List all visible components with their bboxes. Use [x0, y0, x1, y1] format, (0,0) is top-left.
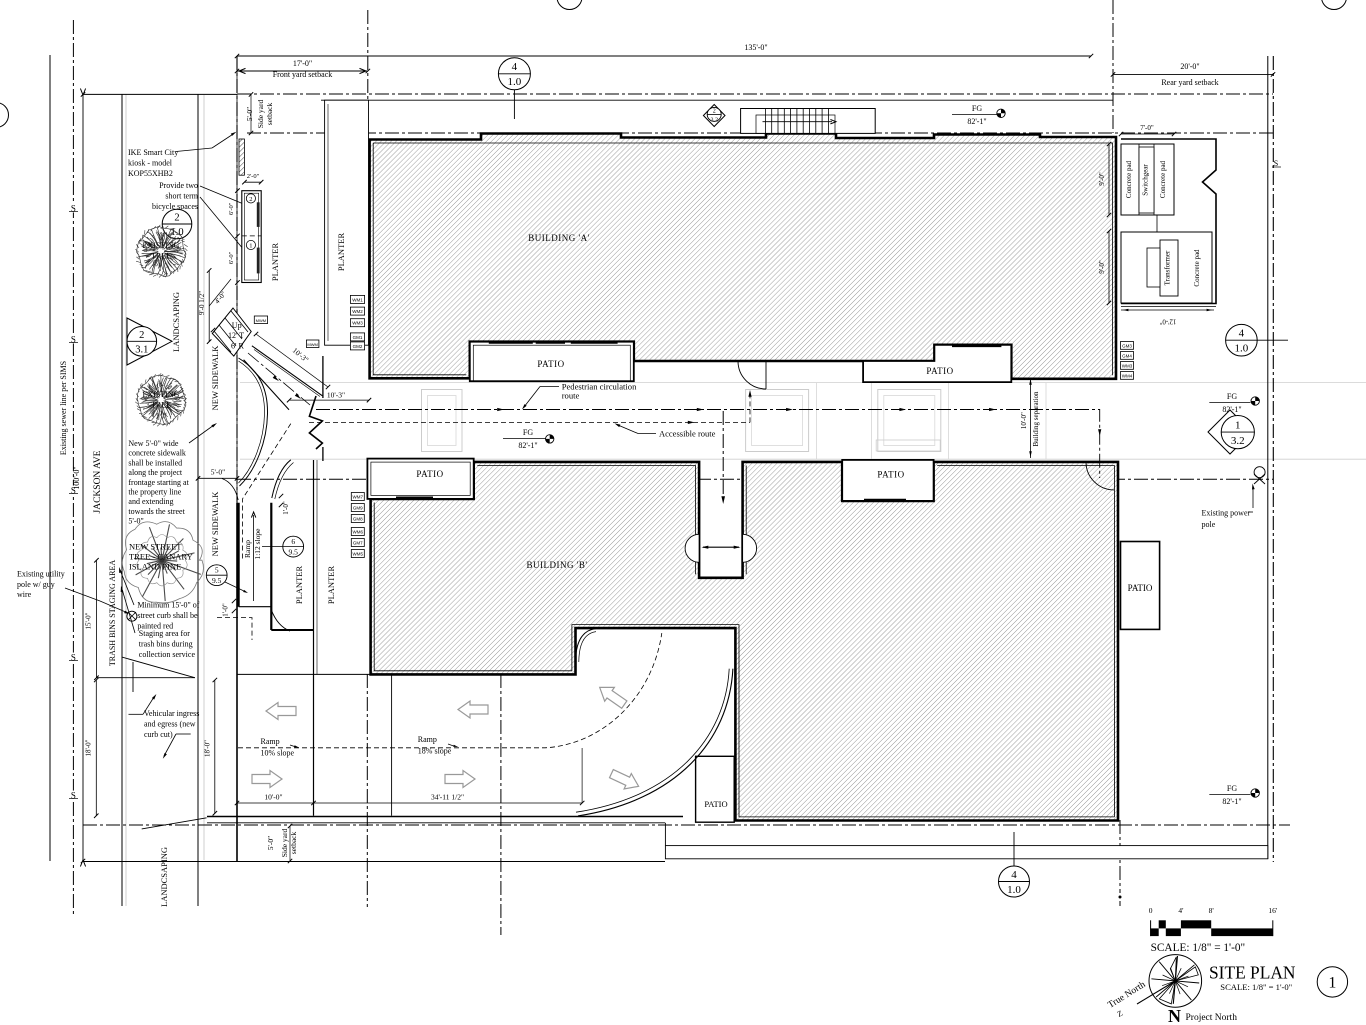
- svg-text:trash bins during: trash bins during: [139, 640, 193, 649]
- svg-text:EXISTING: EXISTING: [143, 390, 180, 399]
- svg-text:1: 1: [1235, 420, 1241, 432]
- svg-text:3.2: 3.2: [710, 117, 718, 123]
- svg-text:kiosk - model: kiosk - model: [128, 159, 173, 168]
- svg-text:1.0: 1.0: [1007, 884, 1021, 896]
- svg-text:EXISTING: EXISTING: [143, 241, 180, 250]
- svg-text:Existing power: Existing power: [1202, 508, 1251, 517]
- svg-text:FG: FG: [523, 428, 533, 437]
- svg-text:LANDCSAPING: LANDCSAPING: [171, 292, 181, 352]
- svg-text:route: route: [562, 391, 580, 401]
- svg-text:Concrete pad: Concrete pad: [1125, 160, 1133, 198]
- svg-text:NEW STREET: NEW STREET: [129, 542, 182, 552]
- svg-text:PATIO: PATIO: [704, 799, 727, 809]
- svg-text:PATIO: PATIO: [1128, 583, 1153, 593]
- svg-text:9.5: 9.5: [289, 547, 299, 556]
- svg-text:10'-0": 10'-0": [1020, 412, 1028, 429]
- svg-text:Vehicular ingress: Vehicular ingress: [144, 709, 199, 718]
- svg-text:S: S: [71, 335, 76, 345]
- svg-text:5'-0": 5'-0": [128, 517, 143, 526]
- svg-text:WM3: WM3: [352, 321, 363, 326]
- svg-text:12'-0": 12'-0": [1159, 318, 1176, 326]
- svg-text:NEW SIDEWALK: NEW SIDEWALK: [210, 491, 220, 557]
- svg-text:6'-0": 6'-0": [228, 202, 235, 215]
- svg-text:Rear yard setback: Rear yard setback: [1161, 78, 1218, 87]
- svg-text:100'-0": 100'-0": [72, 466, 81, 489]
- svg-text:IKE Smart City: IKE Smart City: [128, 148, 178, 157]
- svg-text:Existing sewer line per SIMS: Existing sewer line per SIMS: [59, 361, 68, 455]
- svg-text:TREE: TREE: [151, 252, 171, 261]
- svg-text:20'-0": 20'-0": [1180, 62, 1199, 71]
- svg-text:curb cut): curb cut): [144, 730, 173, 739]
- svg-text:5'-0": 5'-0": [211, 468, 225, 477]
- svg-text:JACKSON AVE: JACKSON AVE: [93, 450, 103, 513]
- svg-text:GM9: GM9: [353, 506, 363, 511]
- svg-text:1: 1: [249, 243, 252, 250]
- svg-text:WM6: WM6: [353, 530, 364, 535]
- svg-text:SITE PLAN: SITE PLAN: [1209, 963, 1296, 983]
- svg-text:6'-0": 6'-0": [228, 251, 235, 264]
- svg-text:GM7: GM7: [353, 541, 363, 546]
- svg-text:82'-1": 82'-1": [518, 441, 537, 450]
- svg-text:0: 0: [1149, 906, 1153, 915]
- svg-text:4: 4: [1011, 869, 1017, 881]
- svg-text:PLANTER: PLANTER: [326, 566, 336, 605]
- svg-text:collection service: collection service: [139, 650, 196, 659]
- svg-text:2: 2: [249, 196, 252, 203]
- svg-text:TREE - CANARY: TREE - CANARY: [129, 552, 193, 562]
- svg-text:WM7: WM7: [353, 495, 364, 500]
- svg-text:TREE: TREE: [151, 401, 171, 410]
- svg-text:Concrete pad: Concrete pad: [1193, 249, 1201, 287]
- svg-text:Side yard: Side yard: [280, 828, 289, 857]
- svg-text:4: 4: [1239, 328, 1245, 340]
- svg-text:GM1: GM1: [353, 335, 363, 340]
- svg-text:Concrete pad: Concrete pad: [1159, 160, 1167, 198]
- svg-text:5: 5: [215, 566, 219, 575]
- svg-text:N: N: [1168, 1006, 1181, 1025]
- svg-text:WM4: WM4: [1122, 374, 1133, 379]
- svg-text:9'-0": 9'-0": [1098, 260, 1106, 274]
- svg-text:1.0: 1.0: [1235, 343, 1249, 355]
- svg-text:TRASH BINS STAGING AREA: TRASH BINS STAGING AREA: [108, 560, 117, 666]
- svg-text:SCALE: 1/8" = 1'-0": SCALE: 1/8" = 1'-0": [1220, 982, 1292, 992]
- svg-text:New 5'-0" wide: New 5'-0" wide: [128, 439, 178, 448]
- svg-text:10'-3": 10'-3": [327, 391, 345, 400]
- svg-text:18'-0": 18'-0": [204, 740, 212, 757]
- svg-text:PLANTER: PLANTER: [270, 243, 280, 282]
- svg-text:WM3: WM3: [1122, 364, 1133, 369]
- svg-text:6' R: 6' R: [231, 342, 244, 351]
- svg-text:16': 16': [1268, 906, 1278, 915]
- svg-text:18'-0": 18'-0": [85, 739, 93, 756]
- svg-text:12' T: 12' T: [228, 331, 244, 340]
- svg-text:Minimum 15'-0" of: Minimum 15'-0" of: [137, 601, 199, 610]
- svg-text:8': 8': [1209, 906, 1215, 915]
- svg-text:PLANTER: PLANTER: [294, 566, 304, 605]
- svg-text:82'-1": 82'-1": [1222, 797, 1241, 806]
- svg-text:WM5: WM5: [353, 552, 364, 557]
- svg-text:S: S: [71, 204, 76, 214]
- svg-text:4: 4: [512, 61, 518, 73]
- svg-text:along the project: along the project: [128, 468, 183, 477]
- svg-text:Ramp: Ramp: [243, 540, 252, 558]
- svg-text:9'-0 1/2": 9'-0 1/2": [198, 291, 206, 315]
- svg-text:6: 6: [291, 537, 295, 546]
- svg-text:FG: FG: [1227, 392, 1237, 401]
- svg-text:Front yard setback: Front yard setback: [273, 70, 333, 79]
- svg-text:WM2: WM2: [352, 309, 363, 314]
- svg-text:Up: Up: [232, 321, 242, 330]
- svg-text:KOP55XHB2: KOP55XHB2: [128, 169, 173, 178]
- svg-text:Existing utility: Existing utility: [17, 570, 65, 579]
- svg-text:ISLAND PINE: ISLAND PINE: [129, 562, 181, 572]
- svg-text:Building separation: Building separation: [1032, 391, 1040, 447]
- svg-text:1:12 slope: 1:12 slope: [253, 528, 262, 560]
- svg-text:S: S: [71, 653, 76, 663]
- svg-text:Accessible route: Accessible route: [659, 429, 716, 439]
- svg-text:135'-0": 135'-0": [744, 43, 767, 52]
- svg-text:9'-0": 9'-0": [1098, 172, 1106, 186]
- svg-text:15'-0": 15'-0": [84, 612, 92, 629]
- svg-text:17'-0": 17'-0": [293, 59, 312, 68]
- svg-text:82'-1": 82'-1": [967, 117, 986, 126]
- svg-text:BUILDING 'B': BUILDING 'B': [527, 560, 588, 570]
- svg-text:street curb shall be: street curb shall be: [137, 611, 198, 620]
- svg-text:LANDCSAPING: LANDCSAPING: [159, 847, 169, 907]
- svg-text:34'-11 1/2": 34'-11 1/2": [431, 793, 464, 802]
- svg-text:BUILDING 'A': BUILDING 'A': [528, 233, 590, 243]
- svg-text:pole: pole: [1202, 520, 1216, 529]
- svg-text:3.2: 3.2: [1231, 435, 1245, 447]
- svg-text:3.1: 3.1: [135, 345, 148, 356]
- svg-text:S: S: [71, 791, 76, 801]
- svg-text:GM8: GM8: [353, 517, 363, 522]
- svg-text:MWM: MWM: [256, 318, 266, 323]
- svg-text:GM4: GM4: [1122, 354, 1132, 359]
- svg-text:MWM: MWM: [307, 342, 317, 347]
- svg-text:Switchgear: Switchgear: [1142, 164, 1150, 196]
- svg-text:FG: FG: [1227, 784, 1237, 793]
- svg-text:PATIO: PATIO: [416, 469, 443, 479]
- svg-text:2: 2: [139, 330, 144, 341]
- svg-text:2: 2: [713, 108, 716, 114]
- svg-text:Transformer: Transformer: [1164, 250, 1172, 285]
- svg-text:10% slope: 10% slope: [261, 749, 295, 758]
- svg-text:Provide two: Provide two: [159, 181, 198, 190]
- svg-text:7'-0": 7'-0": [1140, 124, 1154, 132]
- svg-text:wire: wire: [17, 590, 32, 599]
- svg-text:Staging area for: Staging area for: [139, 629, 190, 638]
- svg-text:2'-0": 2'-0": [247, 173, 260, 180]
- svg-text:pole w/ guy: pole w/ guy: [17, 580, 55, 589]
- svg-text:NEW SIDEWALK: NEW SIDEWALK: [210, 345, 220, 411]
- svg-text:1.0: 1.0: [508, 76, 522, 88]
- svg-text:and egress (new: and egress (new: [144, 720, 196, 729]
- svg-text:5'-0": 5'-0": [266, 836, 275, 850]
- svg-text:and extending: and extending: [128, 497, 173, 506]
- svg-text:GM3: GM3: [1122, 344, 1132, 349]
- svg-text:Project North: Project North: [1186, 1013, 1238, 1023]
- svg-text:9.5: 9.5: [212, 576, 222, 585]
- svg-text:towards the street: towards the street: [128, 507, 185, 516]
- svg-text:short term: short term: [165, 192, 198, 201]
- svg-text:Side yard: Side yard: [256, 99, 265, 128]
- svg-text:setback: setback: [265, 103, 274, 126]
- svg-text:shall be installed: shall be installed: [128, 458, 182, 467]
- svg-text:PATIO: PATIO: [877, 470, 904, 480]
- svg-text:frontage starting at: frontage starting at: [128, 478, 189, 487]
- svg-text:4': 4': [1178, 906, 1184, 915]
- svg-text:WM1: WM1: [352, 297, 363, 302]
- svg-text:Ramp: Ramp: [261, 737, 280, 746]
- svg-text:the property line: the property line: [128, 488, 181, 497]
- svg-text:concrete sidewalk: concrete sidewalk: [128, 449, 186, 458]
- svg-text:GM2: GM2: [353, 344, 363, 349]
- svg-text:1: 1: [1328, 975, 1336, 992]
- svg-text:Ramp: Ramp: [418, 735, 437, 744]
- svg-text:2: 2: [174, 213, 179, 224]
- svg-text:PATIO: PATIO: [926, 366, 953, 376]
- svg-text:10'-0": 10'-0": [264, 793, 282, 802]
- svg-text:5'-0": 5'-0": [245, 107, 254, 121]
- svg-text:PATIO: PATIO: [537, 359, 564, 369]
- svg-text:FG: FG: [972, 104, 982, 113]
- svg-text:PLANTER: PLANTER: [336, 233, 346, 272]
- svg-text:1'-0": 1'-0": [222, 603, 230, 617]
- svg-text:SCALE: 1/8" = 1'-0": SCALE: 1/8" = 1'-0": [1151, 942, 1246, 954]
